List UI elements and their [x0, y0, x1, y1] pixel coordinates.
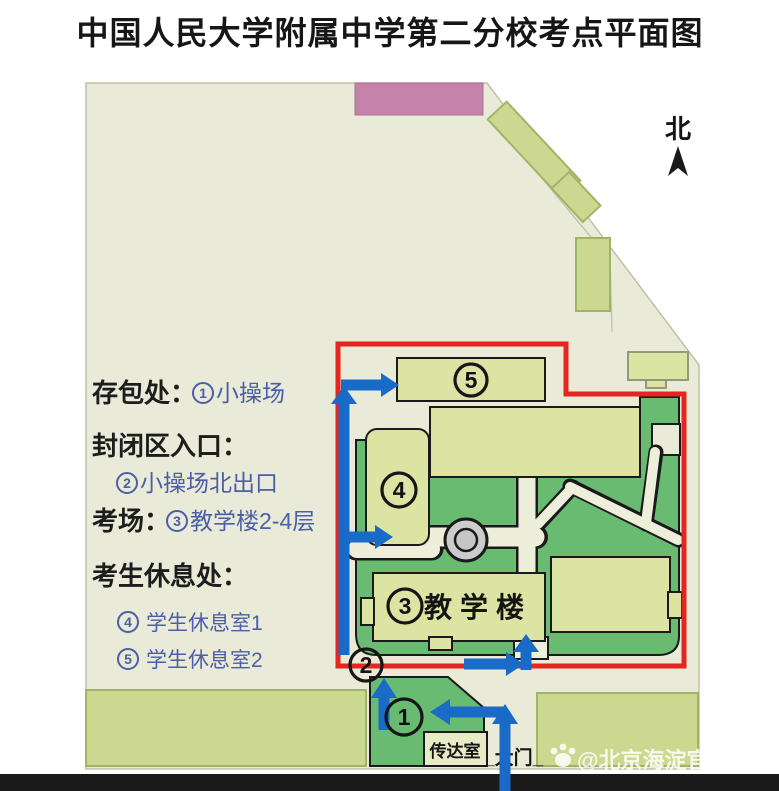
bottom-black-bar	[0, 774, 779, 791]
watermark: @北京海淀官方发布	[551, 744, 775, 773]
marker-2: 2	[360, 652, 373, 678]
building-middle	[430, 407, 640, 477]
building-3-south-annex	[429, 637, 452, 650]
legend-num-2: 2	[123, 475, 131, 491]
small-east-building	[628, 352, 688, 380]
reception-room-label: 传达室	[429, 741, 481, 761]
legend-num-3: 3	[173, 513, 181, 529]
building-3-west-annex	[361, 598, 374, 625]
north-label: 北	[665, 114, 691, 144]
north-indicator: 北	[665, 114, 691, 176]
legend-rest-area-label: 考生休息处：	[92, 561, 248, 591]
building-southeast-annex	[668, 592, 682, 618]
marker-1: 1	[398, 704, 411, 730]
marker-5: 5	[465, 367, 478, 393]
legend-bag-storage-value: 小操场	[216, 380, 285, 406]
legend-rest-room2-value: 学生休息室2	[146, 649, 263, 672]
teaching-building-label: 教学楼	[424, 591, 532, 623]
building-southeast-in-enclosure	[551, 557, 670, 632]
south-west-building	[86, 690, 366, 766]
marker-3: 3	[399, 593, 412, 619]
fountain	[445, 519, 487, 561]
campus-map-image: 中国人民大学附属中学第二分校考点平面图	[0, 0, 779, 791]
map-canvas: 中国人民大学附属中学第二分校考点平面图	[0, 0, 779, 791]
east-building	[576, 238, 610, 311]
legend-rest-room1-value: 学生休息室1	[146, 612, 263, 635]
page-title: 中国人民大学附属中学第二分校考点平面图	[76, 15, 703, 51]
legend-exam-room-label: 考场：	[92, 506, 170, 536]
main-gate-label: _大门_	[483, 746, 544, 769]
legend-num-1: 1	[199, 385, 207, 401]
legend-exam-room-value: 教学楼2-4层	[190, 508, 315, 534]
watermark-text: @北京海淀官方发布	[577, 748, 774, 773]
marker-4: 4	[393, 477, 406, 503]
legend-bag-storage-label: 存包处：	[92, 378, 196, 408]
legend-closed-entrance-value: 小操场北出口	[140, 470, 278, 496]
north-pink-building	[355, 83, 483, 115]
north-arrow-icon	[668, 146, 688, 176]
legend-closed-entrance-label: 封闭区入口：	[92, 431, 248, 461]
legend-num-4: 4	[124, 614, 132, 630]
legend-num-5: 5	[124, 651, 132, 667]
small-east-building-entry	[646, 380, 666, 388]
